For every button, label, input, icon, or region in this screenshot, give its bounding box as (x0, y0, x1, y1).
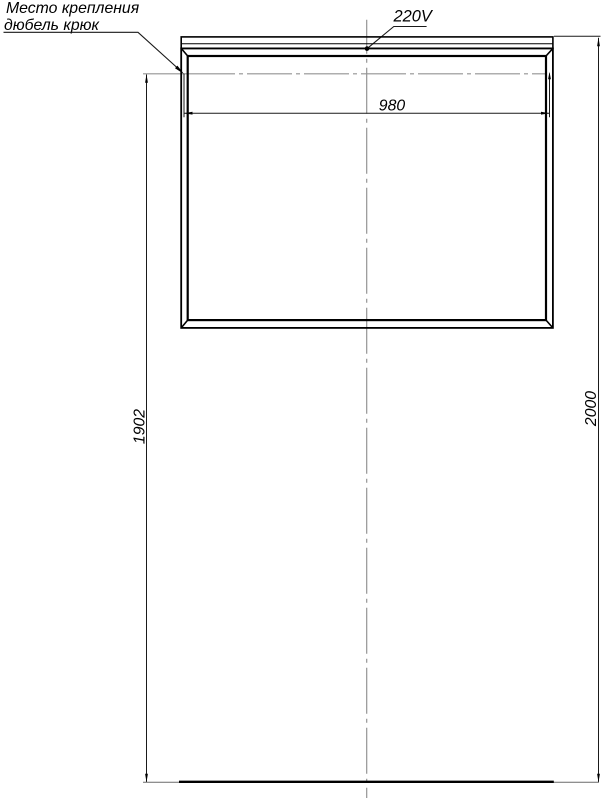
svg-text:Место крепления: Место крепления (6, 0, 140, 17)
svg-text:220V: 220V (393, 8, 434, 26)
svg-text:2000: 2000 (583, 391, 600, 427)
svg-text:дюбель крюк: дюбель крюк (4, 17, 99, 34)
svg-text:1902: 1902 (131, 409, 148, 444)
svg-text:980: 980 (379, 98, 406, 115)
